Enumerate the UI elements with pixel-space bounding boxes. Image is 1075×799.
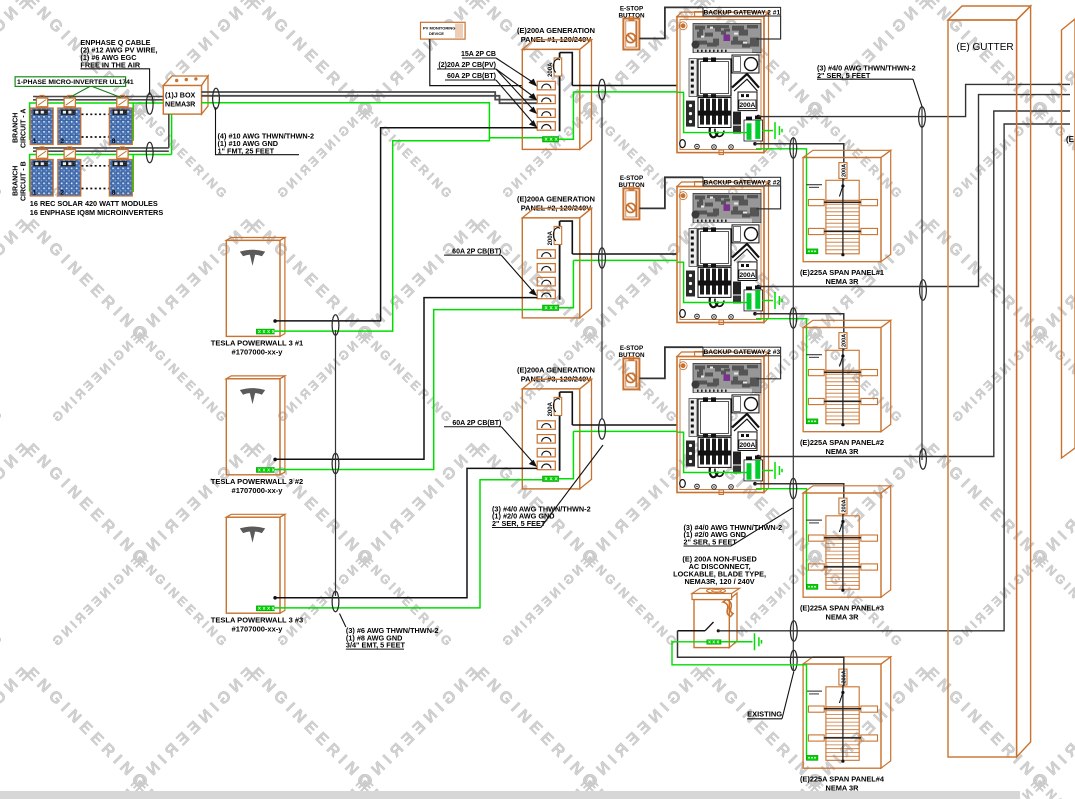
svg-text:(E)225A SPAN PANEL#1: (E)225A SPAN PANEL#1 <box>800 268 884 277</box>
svg-text:(1)J BOX: (1)J BOX <box>165 91 196 100</box>
svg-text:DEVICE: DEVICE <box>429 31 444 36</box>
svg-text:E-STOP: E-STOP <box>620 345 643 352</box>
svg-text:2" SER, 5 FEET: 2" SER, 5 FEET <box>684 538 738 547</box>
svg-text:3/4" EMT, 5 FEET: 3/4" EMT, 5 FEET <box>346 641 406 650</box>
svg-text:60A 2P CB(BT): 60A 2P CB(BT) <box>447 73 496 80</box>
svg-text:CIRCUIT - B: CIRCUIT - B <box>21 161 28 201</box>
svg-text:16 REC SOLAR 420 WATT MODULES: 16 REC SOLAR 420 WATT MODULES <box>30 199 158 208</box>
svg-text:2: 2 <box>60 190 64 197</box>
svg-text:(2)20A 2P CB(PV): (2)20A 2P CB(PV) <box>438 62 496 69</box>
svg-text:#1707000-xx-y: #1707000-xx-y <box>232 486 284 495</box>
svg-text:(E: (E <box>1066 135 1075 144</box>
svg-text:60A 2P CB(BT): 60A 2P CB(BT) <box>452 248 501 255</box>
svg-text:2" SER, 5 FEET: 2" SER, 5 FEET <box>817 71 871 80</box>
svg-text:1: 1 <box>33 190 37 197</box>
svg-text:NEMA 3R: NEMA 3R <box>826 447 860 456</box>
svg-text:BACKUP GATEWAY 2 #3: BACKUP GATEWAY 2 #3 <box>703 349 780 356</box>
svg-text:2" SER, 5 FEET: 2" SER, 5 FEET <box>492 519 546 528</box>
svg-text:NEMA 3R: NEMA 3R <box>826 613 860 622</box>
svg-text:16 ENPHASE IQ8M MICROINVERTERS: 16 ENPHASE IQ8M MICROINVERTERS <box>30 208 164 217</box>
svg-text:NEMA3R, 120 / 240V: NEMA3R, 120 / 240V <box>685 577 755 586</box>
svg-text:(E)200A GENERATION: (E)200A GENERATION <box>517 26 595 35</box>
svg-text:1-PHASE MICRO-INVERTER UL1741: 1-PHASE MICRO-INVERTER UL1741 <box>17 79 134 86</box>
svg-text:TESLA POWERWALL 3 #2: TESLA POWERWALL 3 #2 <box>211 477 303 486</box>
svg-text:(E)225A SPAN PANEL#2: (E)225A SPAN PANEL#2 <box>800 438 884 447</box>
svg-text:60A 2P CB(BT): 60A 2P CB(BT) <box>452 420 501 427</box>
svg-text:FREE IN THE AIR: FREE IN THE AIR <box>80 60 140 69</box>
svg-text:(E)200A GENERATION: (E)200A GENERATION <box>517 194 595 203</box>
svg-text:8: 8 <box>112 138 116 145</box>
svg-text:TESLA POWERWALL 3 #3: TESLA POWERWALL 3 #3 <box>211 616 303 625</box>
svg-text:(E) GUTTER: (E) GUTTER <box>956 42 1013 53</box>
svg-text:BRANCH: BRANCH <box>13 166 20 196</box>
svg-text:8: 8 <box>112 190 116 197</box>
svg-text:2: 2 <box>60 138 64 145</box>
svg-text:1: 1 <box>33 138 37 145</box>
svg-text:CIRCUIT - A: CIRCUIT - A <box>21 109 28 148</box>
svg-text:E-STOP: E-STOP <box>620 5 643 12</box>
svg-text:BACKUP GATEWAY 2 #1: BACKUP GATEWAY 2 #1 <box>703 9 780 16</box>
svg-text:(E)225A SPAN PANEL#4: (E)225A SPAN PANEL#4 <box>800 775 885 784</box>
svg-text:PV MONITORING: PV MONITORING <box>423 26 455 31</box>
svg-text:15A 2P CB: 15A 2P CB <box>461 51 496 58</box>
svg-text:NEMA 3R: NEMA 3R <box>826 277 860 286</box>
svg-text:NEMA3R: NEMA3R <box>165 100 196 109</box>
svg-text:#1707000-xx-y: #1707000-xx-y <box>232 348 284 357</box>
svg-text:1" FMT, 25 FEET: 1" FMT, 25 FEET <box>218 146 275 155</box>
svg-text:TESLA POWERWALL 3 #1: TESLA POWERWALL 3 #1 <box>211 339 303 348</box>
svg-text:#1707000-xx-y: #1707000-xx-y <box>232 625 284 634</box>
svg-text:BRANCH: BRANCH <box>13 113 20 143</box>
svg-text:(E)200A GENERATION: (E)200A GENERATION <box>517 365 595 374</box>
svg-text:(E)225A SPAN PANEL#3: (E)225A SPAN PANEL#3 <box>800 604 884 613</box>
svg-text:E-STOP: E-STOP <box>620 175 643 182</box>
svg-text:EXISTING: EXISTING <box>747 710 782 719</box>
svg-text:BACKUP GATEWAY 2 #2: BACKUP GATEWAY 2 #2 <box>703 179 780 186</box>
